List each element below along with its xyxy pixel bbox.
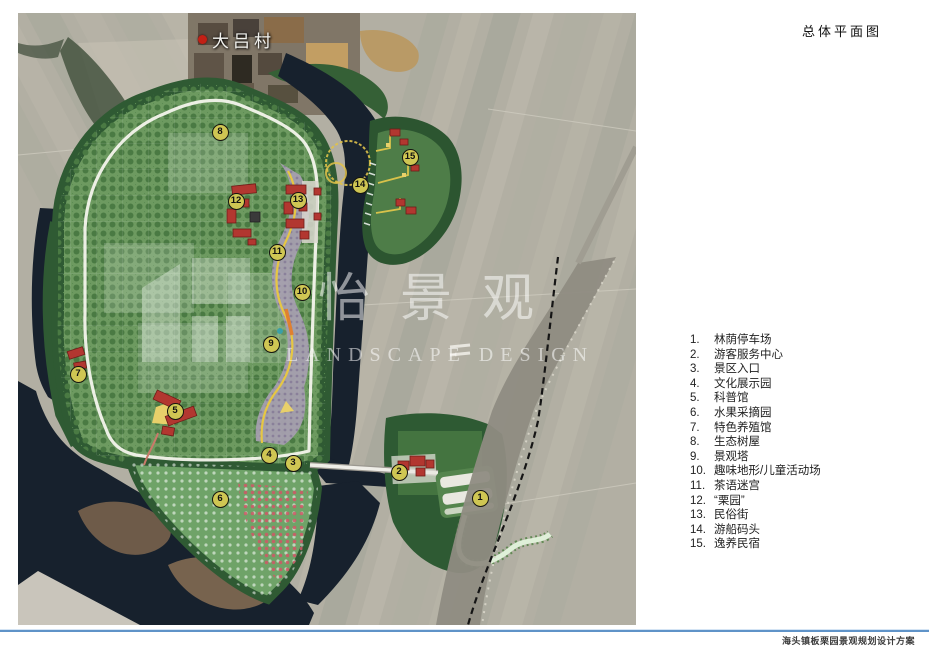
legend-item-number: 14. bbox=[690, 523, 714, 538]
legend-item-label: 水果采摘园 bbox=[714, 406, 772, 421]
legend-item-number: 13. bbox=[690, 508, 714, 523]
legend-item-label: 景区入口 bbox=[714, 362, 760, 377]
legend: 1. 林荫停车场 2. 游客服务中心 3. 景区入口 4. 文化展示园 5. 科… bbox=[690, 333, 821, 552]
legend-item: 12. “栗园” bbox=[690, 494, 821, 509]
legend-item-label: 特色养殖馆 bbox=[714, 421, 772, 436]
legend-item: 2. 游客服务中心 bbox=[690, 348, 821, 363]
legend-item-label: 趣味地形/儿童活动场 bbox=[714, 464, 821, 479]
map-marker-8: 8 bbox=[212, 124, 229, 141]
legend-item: 8. 生态树屋 bbox=[690, 435, 821, 450]
village-label: 大吕村 bbox=[198, 27, 275, 52]
legend-item-label: 林荫停车场 bbox=[714, 333, 772, 348]
legend-item-label: 民俗街 bbox=[714, 508, 749, 523]
legend-item: 3. 景区入口 bbox=[690, 362, 821, 377]
master-plan-map: 大吕村 怡景观 LANDSCAPE DESIGN 123456789101112… bbox=[18, 13, 636, 625]
map-marker-5: 5 bbox=[167, 403, 184, 420]
map-marker-2: 2 bbox=[391, 464, 408, 481]
legend-item-label: 逸养民宿 bbox=[714, 537, 760, 552]
plan-sheet: 大吕村 怡景观 LANDSCAPE DESIGN 123456789101112… bbox=[0, 0, 929, 658]
legend-item-label: 茶语迷宫 bbox=[714, 479, 760, 494]
map-marker-4: 4 bbox=[261, 447, 278, 464]
legend-item-label: 景观塔 bbox=[714, 450, 749, 465]
legend-item-number: 3. bbox=[690, 362, 714, 377]
legend-item-number: 7. bbox=[690, 421, 714, 436]
legend-item-number: 4. bbox=[690, 377, 714, 392]
map-marker-12: 12 bbox=[228, 193, 245, 210]
legend-item-number: 11. bbox=[690, 479, 714, 494]
legend-item-label: 游船码头 bbox=[714, 523, 760, 538]
village-dot-icon bbox=[198, 35, 207, 44]
map-marker-6: 6 bbox=[212, 491, 229, 508]
legend-item: 4. 文化展示园 bbox=[690, 377, 821, 392]
legend-item-number: 15. bbox=[690, 537, 714, 552]
legend-item: 5. 科普馆 bbox=[690, 391, 821, 406]
village-name: 大吕村 bbox=[212, 27, 275, 52]
watermark-cn: 怡景观 bbox=[318, 256, 564, 331]
legend-item: 7. 特色养殖馆 bbox=[690, 421, 821, 436]
legend-item: 1. 林荫停车场 bbox=[690, 333, 821, 348]
legend-item: 14. 游船码头 bbox=[690, 523, 821, 538]
legend-item-number: 10. bbox=[690, 464, 714, 479]
legend-item-number: 1. bbox=[690, 333, 714, 348]
legend-item: 9. 景观塔 bbox=[690, 450, 821, 465]
map-marker-11: 11 bbox=[269, 244, 286, 261]
legend-item-number: 2. bbox=[690, 348, 714, 363]
map-marker-14: 14 bbox=[352, 177, 369, 194]
legend-item: 15. 逸养民宿 bbox=[690, 537, 821, 552]
legend-item-label: “栗园” bbox=[714, 494, 745, 509]
legend-item-number: 8. bbox=[690, 435, 714, 450]
legend-item-number: 9. bbox=[690, 450, 714, 465]
map-marker-15: 15 bbox=[402, 149, 419, 166]
watermark-en: LANDSCAPE DESIGN bbox=[286, 344, 594, 367]
legend-item-number: 12. bbox=[690, 494, 714, 509]
map-marker-1: 1 bbox=[472, 490, 489, 507]
play-dot bbox=[277, 328, 283, 334]
legend-item-label: 生态树屋 bbox=[714, 435, 760, 450]
legend-item: 13. 民俗街 bbox=[690, 508, 821, 523]
legend-item: 10. 趣味地形/儿童活动场 bbox=[690, 464, 821, 479]
footer-rule bbox=[0, 630, 929, 632]
legend-item: 6. 水果采摘园 bbox=[690, 406, 821, 421]
map-marker-7: 7 bbox=[70, 366, 87, 383]
legend-item-label: 文化展示园 bbox=[714, 377, 772, 392]
legend-item: 11. 茶语迷宫 bbox=[690, 479, 821, 494]
footer-project-name: 海头镇板栗园景观规划设计方案 bbox=[782, 634, 915, 647]
map-marker-9: 9 bbox=[263, 336, 280, 353]
legend-item-number: 6. bbox=[690, 406, 714, 421]
map-marker-10: 10 bbox=[294, 284, 311, 301]
legend-item-number: 5. bbox=[690, 391, 714, 406]
legend-item-label: 游客服务中心 bbox=[714, 348, 783, 363]
page-title: 总体平面图 bbox=[802, 21, 882, 40]
legend-item-label: 科普馆 bbox=[714, 391, 749, 406]
map-marker-3: 3 bbox=[285, 455, 302, 472]
map-marker-13: 13 bbox=[290, 192, 307, 209]
